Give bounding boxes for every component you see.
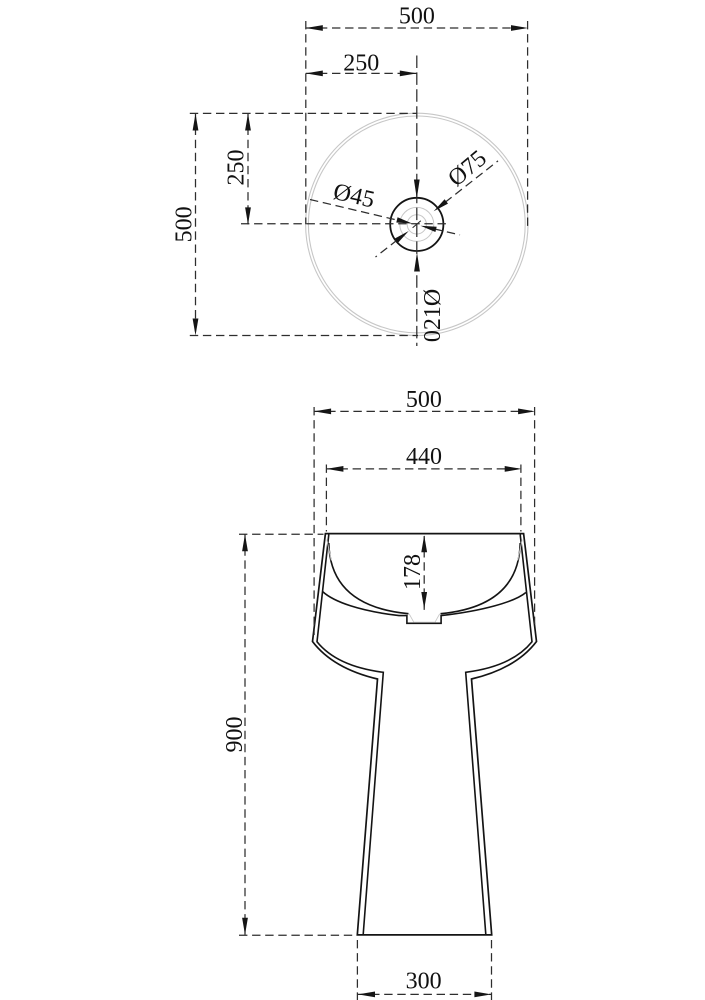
svg-text:500: 500 (172, 206, 198, 242)
svg-text:Ø45: Ø45 (331, 179, 377, 214)
svg-text:021Ø: 021Ø (420, 289, 446, 342)
svg-text:250: 250 (343, 51, 379, 77)
svg-text:250: 250 (224, 150, 250, 186)
svg-text:300: 300 (406, 968, 442, 994)
svg-text:500: 500 (406, 387, 442, 413)
svg-text:500: 500 (399, 4, 435, 30)
svg-text:440: 440 (406, 444, 442, 470)
svg-text:178: 178 (400, 554, 426, 590)
svg-text:Ø75: Ø75 (443, 145, 491, 191)
svg-text:900: 900 (222, 717, 248, 753)
